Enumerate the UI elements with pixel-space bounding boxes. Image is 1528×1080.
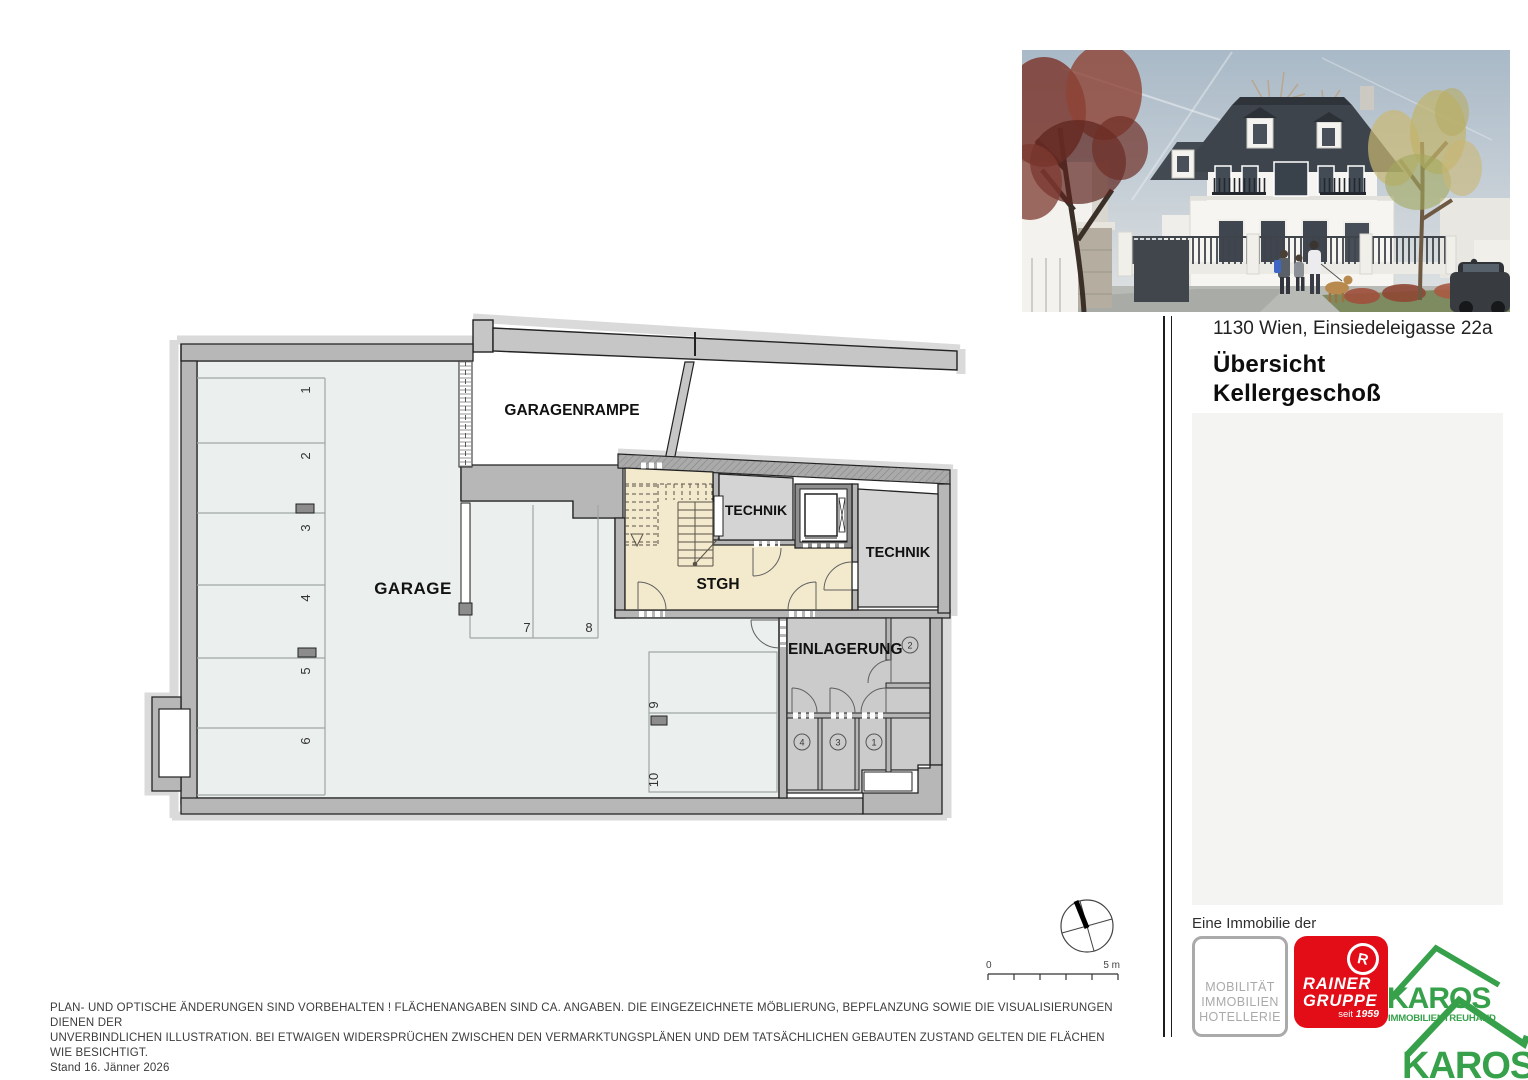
svg-text:3: 3: [298, 524, 313, 531]
elevator: [795, 484, 852, 548]
svg-text:8: 8: [585, 620, 592, 635]
rainer-seit-text: seit: [1338, 1009, 1355, 1020]
mobilitaet-line-1: MOBILITÄT: [1205, 980, 1275, 995]
mobilitaet-line-3: HOTELLERIE: [1199, 1010, 1281, 1025]
svg-text:4: 4: [298, 594, 313, 601]
scale-max: 5 m: [1103, 960, 1120, 971]
technik-door-slot: [714, 496, 723, 536]
storage-niche: [864, 772, 912, 791]
page-title: Übersicht Kellergeschoß: [1213, 350, 1381, 408]
divider-line: [1163, 316, 1165, 1037]
rainer-seit: seit 1959: [1338, 1008, 1379, 1020]
thin-wall: [461, 503, 470, 603]
rendering-art: [1022, 50, 1510, 312]
svg-text:9: 9: [646, 701, 661, 708]
garage-door: [459, 361, 472, 467]
light-well: [159, 709, 190, 777]
photo-car: [1450, 262, 1510, 312]
compass-and-scale: 0 5 m: [983, 884, 1123, 986]
rainer-wordmark: RAINER GRUPPE: [1303, 976, 1377, 1010]
karos-logo2-art: KAROS: [1398, 992, 1528, 1080]
title-line-2: Kellergeschoß: [1213, 379, 1381, 408]
karos-name-2: KAROS: [1402, 1045, 1528, 1080]
divider-line-thin: [1171, 316, 1172, 1037]
karos-logo-watermark: KAROS: [1398, 992, 1528, 1080]
rendering-image: [1022, 50, 1510, 312]
mobilitaet-line-2: IMMOBILIEN: [1201, 995, 1279, 1010]
title-line-1: Übersicht: [1213, 350, 1381, 379]
scale-bar: [988, 974, 1118, 980]
svg-text:7: 7: [523, 620, 530, 635]
label-technik-small: TECHNIK: [725, 502, 787, 518]
label-stgh: STGH: [696, 576, 739, 593]
mobilitaet-logo: MOBILITÄT IMMOBILIEN HOTELLERIE: [1192, 936, 1288, 1037]
svg-text:1: 1: [298, 386, 313, 393]
label-garagenrampe: GARAGENRAMPE: [504, 402, 639, 419]
scale-zero: 0: [986, 960, 992, 971]
svg-text:6: 6: [298, 737, 313, 744]
disclaimer-line-1: PLAN- UND OPTISCHE ÄNDERUNGEN SIND VORBE…: [50, 1001, 1130, 1031]
address: 1130 Wien, Einsiedeleigasse 22a: [1213, 318, 1493, 340]
rainer-gruppe-logo: R RAINER GRUPPE seit 1959: [1294, 936, 1388, 1028]
notes-panel: [1192, 413, 1503, 905]
rainer-word-1: RAINER: [1303, 976, 1377, 993]
label-garage: GARAGE: [374, 579, 452, 598]
label-einlagerung: EINLAGERUNG: [788, 641, 903, 658]
svg-text:2: 2: [298, 452, 313, 459]
svg-text:1: 1: [871, 738, 876, 748]
label-technik-large: TECHNIK: [866, 545, 931, 561]
rainer-year: 1959: [1356, 1008, 1379, 1020]
svg-text:4: 4: [799, 738, 804, 748]
footer-disclaimer: PLAN- UND OPTISCHE ÄNDERUNGEN SIND VORBE…: [50, 1001, 1130, 1076]
svg-text:2: 2: [907, 641, 912, 651]
branding-intro: Eine Immobilie der: [1192, 915, 1316, 932]
svg-text:10: 10: [646, 773, 661, 787]
plan-date: Stand 16. Jänner 2026: [50, 1061, 1130, 1076]
north-arrow-icon: [1061, 900, 1113, 952]
floor-plan: GARAGE GARAGENRAMPE STGH TECHNIK TECHNIK…: [130, 298, 990, 843]
disclaimer-line-2: UNVERBINDLICHEN ILLUSTRATION. BEI ETWAIG…: [50, 1031, 1130, 1061]
svg-text:3: 3: [835, 738, 840, 748]
rainer-r-icon: R: [1344, 940, 1382, 978]
svg-text:5: 5: [298, 667, 313, 674]
